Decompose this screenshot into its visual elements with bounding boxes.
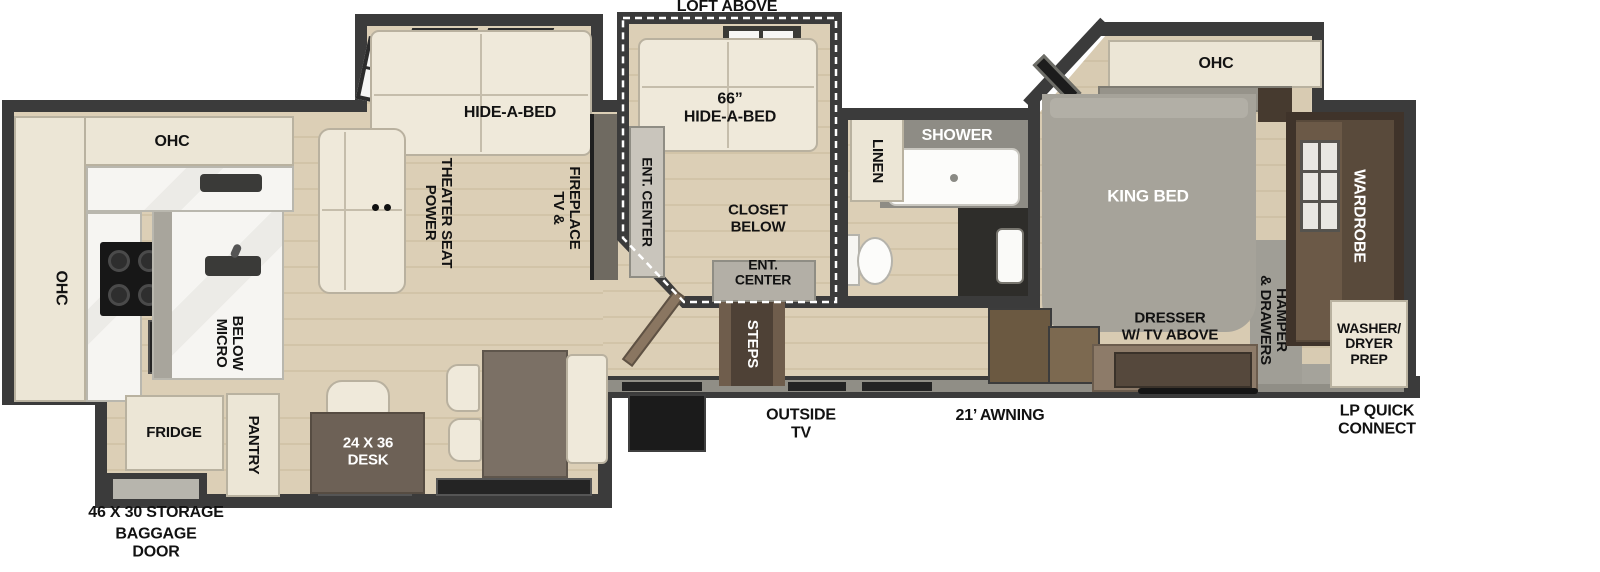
window-slot	[436, 478, 592, 496]
dresser-shadow	[1138, 388, 1258, 394]
wall	[1028, 100, 1040, 308]
label-dresser: DRESSER W/ TV ABOVE	[1122, 311, 1218, 344]
label-linen: LINEN	[869, 139, 885, 183]
label-closet-below: CLOSET BELOW	[728, 203, 788, 236]
dresser-tv	[1114, 352, 1252, 388]
dinette-chair	[448, 418, 482, 462]
label-wardrobe: WARDROBE	[1350, 169, 1367, 263]
wall	[836, 108, 848, 308]
island-sink	[205, 256, 261, 276]
label-bedroom-ohc: OHC	[1199, 55, 1234, 73]
label-storage: 46 X 30 STORAGE	[88, 504, 223, 522]
kitchen-sink	[200, 174, 262, 192]
wall	[2, 100, 14, 405]
label-pantry: PANTRY	[245, 416, 261, 475]
label-hide-a-bed: HIDE-A-BED	[464, 104, 556, 122]
front-window-mullion	[1318, 143, 1321, 229]
burner	[108, 284, 130, 306]
label-tv-fireplace: TV & FIREPLACE	[550, 166, 582, 249]
label-power-theater-seat: POWER THEATER SEAT	[422, 158, 454, 268]
theater-seat-back	[344, 132, 346, 290]
wall	[2, 100, 367, 112]
king-bed	[1042, 94, 1256, 332]
label-outside-tv: OUTSIDE TV	[766, 406, 836, 441]
label-hamper-drawers: HAMPER & DRAWERS	[1257, 275, 1289, 365]
sofa-seam	[374, 94, 588, 96]
front-window-mullion	[1303, 170, 1337, 173]
front-window-mullion	[1303, 200, 1337, 203]
wall	[1096, 22, 1324, 36]
storage-bay-door	[113, 479, 199, 499]
sofa-seam	[480, 34, 482, 152]
label-loft-hide-a-bed: 66” HIDE-A-BED	[684, 90, 776, 125]
burner	[108, 250, 130, 272]
label-ohc-side: OHC	[52, 271, 69, 306]
bed-pillows	[1050, 98, 1248, 118]
outside-tv-box	[628, 394, 706, 452]
window-slot	[622, 382, 702, 391]
label-king-bed: KING BED	[1107, 188, 1189, 207]
ohc-side-cabinet	[14, 116, 86, 402]
bedroom-steps	[988, 308, 1052, 384]
vanity-sink	[996, 228, 1024, 284]
label-ent-center-bottom: ENT. CENTER	[735, 258, 791, 289]
wall	[836, 296, 1040, 308]
shower-drain	[950, 174, 958, 182]
sofa-seam	[642, 86, 814, 88]
toilet-bowl	[857, 237, 893, 285]
tv-fireplace-unit	[590, 114, 618, 280]
recline-button	[384, 204, 391, 211]
label-shower: SHOWER	[922, 127, 993, 145]
recline-button	[372, 204, 379, 211]
counter-rear	[86, 166, 294, 212]
slideout-wall	[591, 14, 603, 110]
label-washer-dryer: WASHER/ DRYER PREP	[1337, 321, 1401, 367]
rv-floorplan: HIDE-A-BED OHC OHC MICRO BELOW FRIDGE PA…	[0, 0, 1600, 572]
wall	[836, 108, 1040, 120]
label-ohc-rear: OHC	[155, 133, 190, 151]
dinette-table	[482, 350, 568, 478]
window-slot	[788, 382, 846, 391]
dinette-bench	[566, 354, 608, 464]
label-lp-quick-connect: LP QUICK CONNECT	[1338, 402, 1416, 437]
label-micro-below: MICRO BELOW	[213, 316, 245, 371]
label-ent-center-side: ENT. CENTER	[640, 157, 655, 247]
label-baggage-door: BAGGAGE DOOR	[115, 525, 196, 560]
label-steps: STEPS	[744, 320, 760, 368]
dinette-chair	[446, 364, 480, 412]
slideout-wall	[355, 14, 603, 26]
window-slot	[862, 382, 932, 391]
power-theater-seat	[318, 128, 406, 294]
wall	[1312, 100, 1416, 112]
label-loft-above: LOFT ABOVE	[677, 0, 778, 16]
label-awning: 21’ AWNING	[956, 407, 1045, 425]
label-fridge: FRIDGE	[146, 425, 201, 442]
island-side	[154, 212, 172, 378]
label-desk: 24 X 36 DESK	[343, 436, 393, 469]
